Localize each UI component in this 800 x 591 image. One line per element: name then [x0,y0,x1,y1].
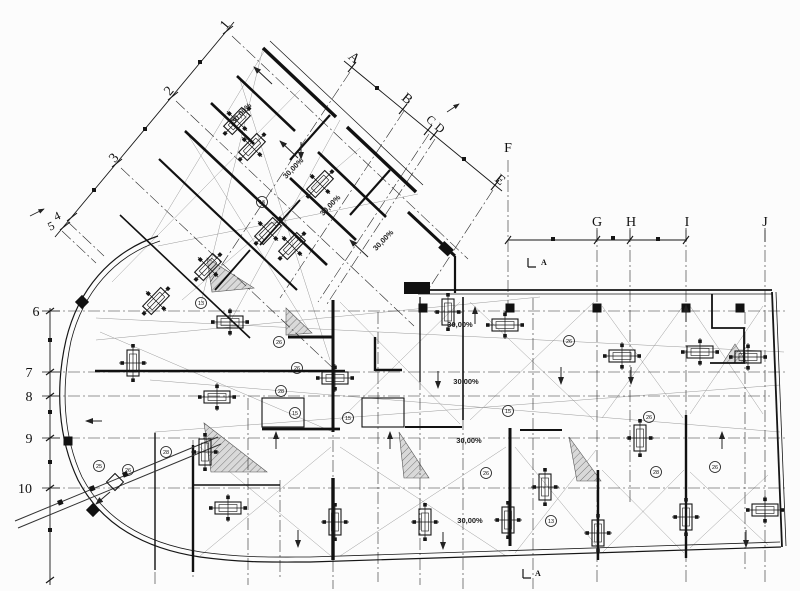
section-marker-label: A [541,258,547,267]
position-marker: 13 [198,301,204,307]
position-marker: 15 [345,416,351,422]
grid-label-A: A [345,49,363,68]
position-marker: 26 [646,415,652,421]
skew-marks [30,104,459,216]
drawing-sheet: 30,00% 30,00% 30,00% 30,00% 30,00% 30,00… [0,0,800,591]
grid-label-G: G [592,215,602,230]
position-marker: 26 [483,471,489,477]
position-marker: 26 [276,340,282,346]
diagonal-grid [62,36,493,370]
hatch-wedges [204,258,747,481]
grid-label-8: 8 [26,390,33,405]
position-marker: 15 [505,409,511,415]
section-marker-label: A [535,569,541,578]
slope-label: 30,00% [457,516,483,525]
section-markers: A A [523,258,547,578]
floor-plan-drawing: 30,00% 30,00% 30,00% 30,00% 30,00% 30,00… [0,0,800,591]
grid-label-B: B [398,91,415,108]
position-marker: 26 [566,339,572,345]
position-marker: 28 [278,389,284,395]
position-marker: 16 [259,200,265,206]
orthogonal-grid [48,160,786,589]
walls-diagonal-wing [120,41,455,338]
position-marker: 28 [653,470,659,476]
position-marker: 25 [96,464,102,470]
slope-label: 30,00% [318,193,342,218]
grid-label-9: 9 [26,432,33,447]
position-marker: 13 [548,519,554,525]
slope-label: 30,00% [456,436,482,445]
grid-label-10: 10 [18,482,32,497]
grid-label-4: 4 [51,208,62,223]
position-marker: 26 [712,465,718,471]
grid-label-F: F [504,141,512,156]
grid-label-H: H [626,215,636,230]
grid-labels: 1 2 3 4 5 A B C D E F G H I J 6 7 8 9 10 [18,18,768,497]
position-marker: 26 [125,468,131,474]
slope-label: 30,00% [453,377,479,386]
grid-label-6: 6 [33,305,40,320]
access-road [15,437,221,528]
position-marker: 15 [292,411,298,417]
position-marker: 28 [163,450,169,456]
position-marker: 26 [294,366,300,372]
grid-label-I: I [685,215,690,230]
grid-label-7: 7 [26,366,33,381]
grid-label-J: J [762,215,768,230]
grid-label-2: 2 [161,84,177,99]
slope-label: 30,00% [447,320,473,329]
slope-label: 30,00% [281,156,305,181]
